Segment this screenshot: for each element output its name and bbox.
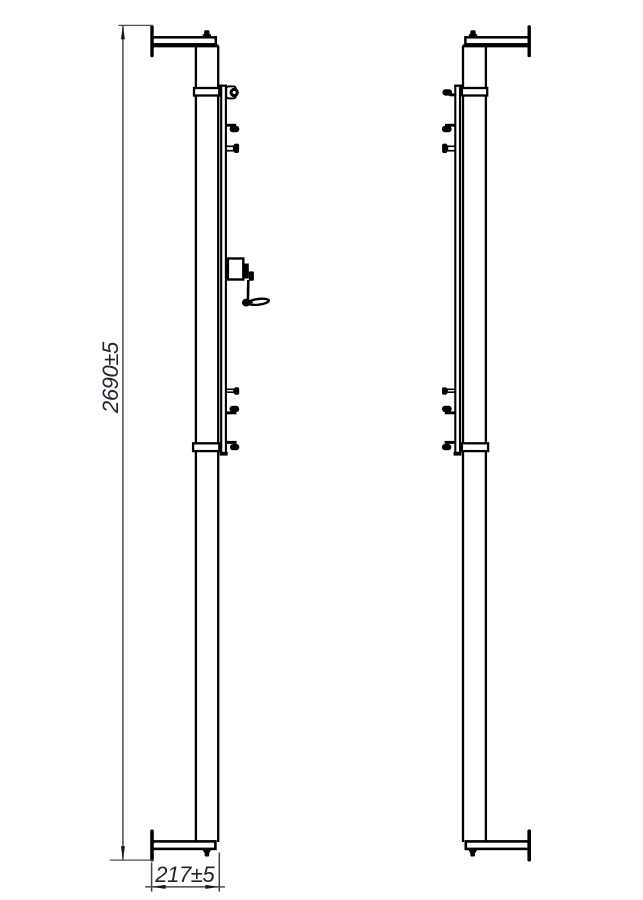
svg-text:2690±5: 2690±5 (98, 341, 123, 414)
svg-text:217±5: 217±5 (154, 862, 215, 887)
